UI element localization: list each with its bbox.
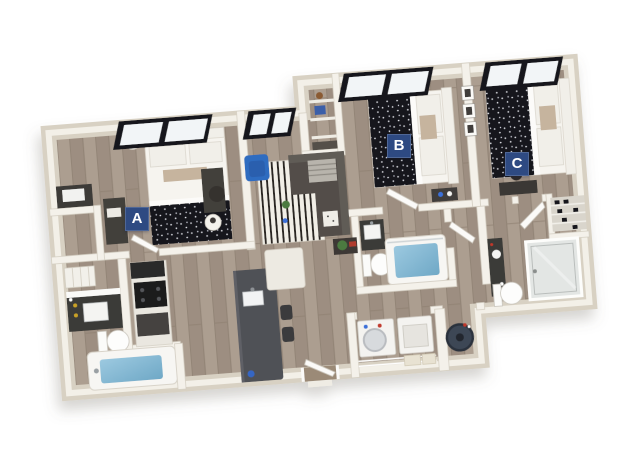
shoe-rack-closet <box>550 195 587 232</box>
linen-cabinet <box>64 266 95 288</box>
unit-badge-a: A <box>125 207 149 231</box>
throw-pillow <box>323 211 339 227</box>
bathtub-a <box>87 346 178 391</box>
dishwasher <box>136 312 170 336</box>
bathtub-b <box>385 234 448 285</box>
unit-badge-b: B <box>387 134 411 158</box>
fridge <box>130 260 165 279</box>
peninsula-counter <box>264 247 305 290</box>
island-sink <box>243 291 264 307</box>
basket <box>422 353 436 364</box>
vanity-b <box>359 219 385 251</box>
bar-stool <box>282 326 295 342</box>
bed-b <box>367 87 458 189</box>
dryer <box>397 316 434 355</box>
building <box>39 54 600 406</box>
range <box>134 280 168 308</box>
washer <box>357 319 396 358</box>
unit-badge-c: C <box>505 152 529 176</box>
louver-vent <box>308 159 338 183</box>
window-living <box>240 107 298 139</box>
basket <box>404 355 421 366</box>
floorplan-3d-render <box>0 0 640 453</box>
floorplan-image: A B C <box>0 0 640 453</box>
kitchen-cabinets <box>130 260 172 347</box>
shower-c <box>526 238 582 300</box>
bed-c <box>485 78 576 180</box>
floorplan-svg <box>0 0 640 453</box>
coffee-table <box>333 237 358 255</box>
bar-stool <box>280 304 293 320</box>
nightstand-b <box>431 187 458 202</box>
dresser-tv <box>56 184 94 209</box>
desk-living <box>201 167 226 213</box>
vanity-a <box>66 288 123 332</box>
